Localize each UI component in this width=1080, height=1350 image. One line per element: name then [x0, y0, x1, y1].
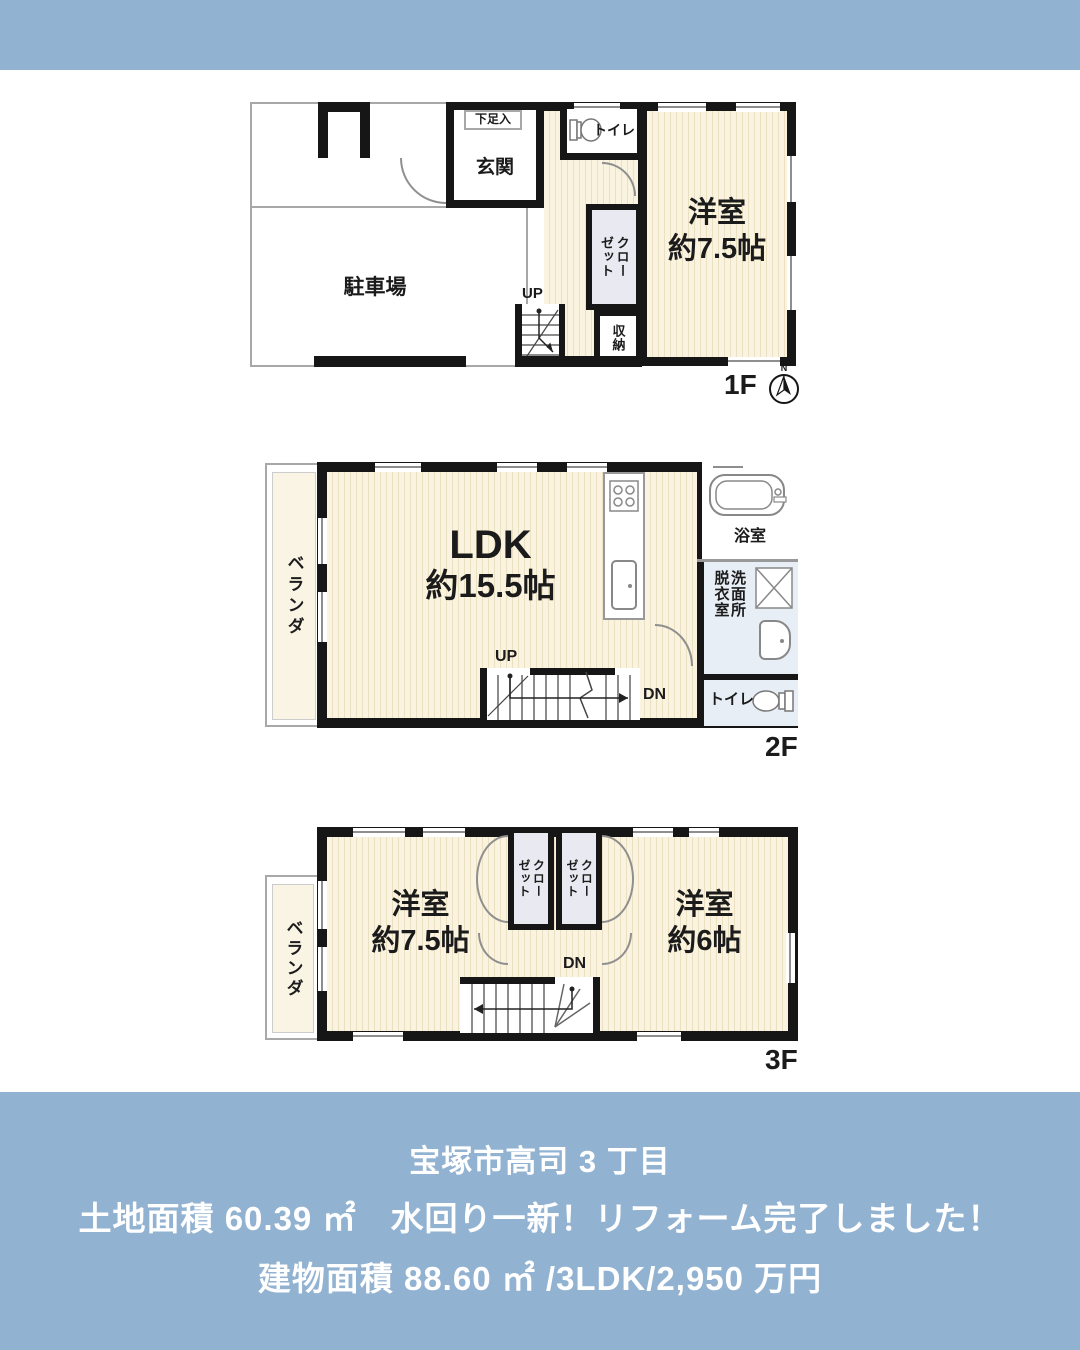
window [658, 103, 706, 112]
bathroom: 浴室 [697, 462, 798, 559]
property-building-line: 建物面積 88.60 ㎡ /3LDK/2,950 万円 [0, 1252, 1080, 1300]
bathroom-label: 浴室 [702, 528, 798, 546]
window [318, 881, 327, 929]
stairs-3f [460, 977, 600, 1033]
closet-3f-right-label: クローゼット [565, 856, 594, 902]
western-room-3f-right-name: 洋室 [617, 887, 792, 923]
window [786, 933, 795, 983]
floor-1-label: 1F [724, 370, 757, 401]
window [423, 828, 465, 837]
western-room-1f-label: 洋室 約7.5帖 [638, 195, 796, 268]
stairs-up-label-2f: UP [495, 648, 517, 666]
toilet-label-2f: トイレ [709, 692, 754, 709]
window [713, 463, 743, 472]
top-band [0, 0, 1080, 70]
closet-3f-left: クローゼット [508, 827, 554, 930]
washing-machine-icon [755, 567, 793, 609]
western-room-1f-size: 約7.5帖 [638, 231, 796, 267]
svg-text:N: N [781, 363, 788, 373]
genkan-label: 玄関 [456, 158, 534, 179]
veranda-2f: ベランダ [265, 463, 321, 727]
window [736, 103, 780, 112]
stairs-2f [480, 668, 640, 720]
bathtub-icon [708, 472, 792, 518]
bottom-wall [314, 356, 466, 367]
western-room-3f-right-size: 約6帖 [617, 923, 792, 959]
property-land-area-line: 土地面積 60.39 ㎡ 水回り一新！リフォーム完了しました！ [0, 1192, 1080, 1240]
window [633, 828, 673, 837]
washroom: 脱衣室 洗面所 [697, 562, 798, 674]
window [574, 103, 620, 112]
toilet-icon [751, 686, 795, 716]
floor-2-plan: ベランダ LDK 約15.5帖 浴室 脱衣室 [265, 460, 800, 762]
window [787, 156, 796, 202]
storage-label: 収納 [609, 324, 628, 352]
stairs-down-label-2f: DN [643, 686, 666, 704]
window [689, 828, 719, 837]
veranda-3f: ベランダ [265, 875, 319, 1040]
floor-2-label: 2F [765, 732, 798, 763]
parking-wall-pillar [318, 102, 370, 158]
stairs-down-label-3f: DN [563, 955, 586, 973]
western-room-1f-name: 洋室 [638, 195, 796, 231]
ldk-size: 約15.5帖 [383, 566, 598, 606]
window [637, 1032, 681, 1041]
floor-3-label: 3F [765, 1045, 798, 1076]
window [353, 1032, 403, 1041]
ldk-label: LDK 約15.5帖 [383, 524, 598, 606]
property-title: 宝塚市高司 3 丁目 [0, 1136, 1080, 1181]
window [318, 518, 327, 564]
veranda-3f-label: ベランダ [281, 919, 306, 999]
dressing-room-label: 脱衣室 [712, 570, 729, 618]
closet-1f: クローゼット [586, 204, 642, 310]
kitchen-counter [603, 472, 645, 620]
ldk-name: LDK [383, 524, 598, 566]
window [353, 828, 405, 837]
veranda-2f-label: ベランダ [282, 554, 307, 638]
floor-1-plan: 駐車場 下足入 玄関 トイレ クローゼット 収納 UP [250, 100, 800, 410]
washroom-label: 洗面所 [729, 570, 746, 618]
bottom-wall [515, 356, 642, 367]
window [318, 947, 327, 991]
toilet-room-2f: トイレ [697, 674, 798, 726]
shoe-cabinet: 下足入 [464, 110, 522, 130]
parking-label: 駐車場 [305, 276, 445, 299]
window [375, 463, 421, 472]
window [567, 463, 607, 472]
compass-north-icon: N [766, 362, 802, 408]
stove-icon [609, 480, 639, 512]
window [787, 256, 796, 310]
wash-basin-icon [759, 620, 791, 660]
closet-3f-left-label: クローゼット [517, 856, 546, 902]
shoe-cabinet-label: 下足入 [475, 113, 511, 126]
parking-divider-line [252, 206, 450, 208]
floorplan-flyer: { "colors": { "band_blue": "#92b2d1", "w… [0, 0, 1080, 1350]
closet-3f-right: クローゼット [556, 827, 602, 930]
window [318, 592, 327, 642]
closet-1f-label: クローゼット [598, 233, 629, 281]
toilet-label-1f: トイレ [593, 123, 635, 138]
kitchen-sink-icon [611, 560, 637, 610]
western-room-3f-right-label: 洋室 約6帖 [617, 887, 792, 960]
stairs-up-label-1f: UP [522, 286, 543, 303]
floor-3-plan: ベランダ 洋室 約7.5帖 クローゼット クローゼット 洋室 約6帖 DN [265, 825, 800, 1085]
window [497, 463, 537, 472]
